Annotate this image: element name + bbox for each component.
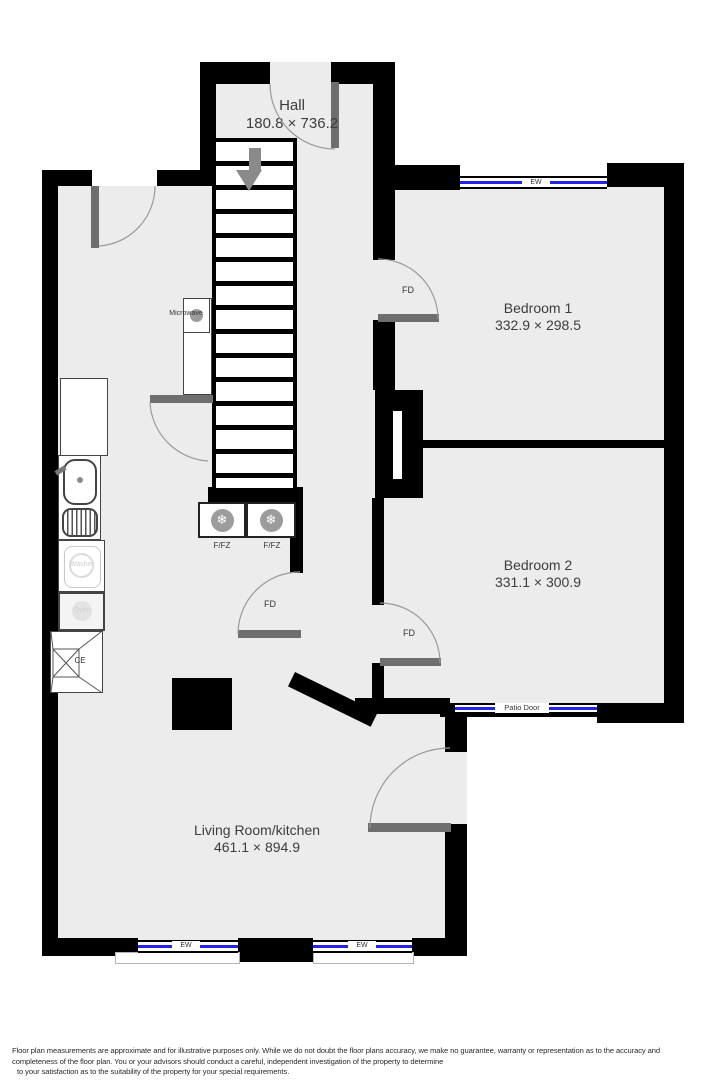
hall-label: Hall 180.8 × 736.2 <box>227 97 357 132</box>
washer-label: Washer <box>60 561 104 568</box>
chimney-pillar <box>172 678 232 730</box>
living-room-ew-right-tag: EW <box>348 941 376 950</box>
bedroom1-left-wall-lower <box>373 320 395 390</box>
fridge-freezer-1: ❄ <box>198 502 246 538</box>
bedroom1-fd-tag: FD <box>394 285 422 295</box>
top-wall-left-a <box>42 170 92 186</box>
kitchen-door-leaf <box>150 395 213 403</box>
bedroom1-name: Bedroom 1 <box>458 299 618 317</box>
sink-drainer <box>62 508 98 537</box>
living-room-right-wall-lower <box>445 824 467 956</box>
patio-door-tag: Patio Door <box>495 703 549 713</box>
stairs-down-arrow-icon <box>236 170 262 191</box>
snowflake-icon: ❄ <box>211 509 234 532</box>
snowflake-icon: ❄ <box>260 509 283 532</box>
stairs-down-arrow-icon <box>249 148 261 172</box>
bedroom2-fd-tag: FD <box>395 628 423 638</box>
oven-label: Oven <box>60 607 104 614</box>
right-exterior-wall <box>664 163 684 723</box>
disclaimer-line-1: Floor plan measurements are approximate … <box>12 1046 714 1057</box>
bedroom1-label: Bedroom 1 332.9 × 298.5 <box>458 299 618 334</box>
living-room-label: Living Room/kitchen 461.1 × 894.9 <box>177 821 337 856</box>
disclaimer-line-2: completeness of the floor plan. You or y… <box>12 1057 714 1068</box>
disclaimer-text: Floor plan measurements are approximate … <box>12 1046 714 1078</box>
fridge-freezer-1-label: F/FZ <box>204 541 240 550</box>
living-room-door-leaf <box>368 823 451 832</box>
bedroom1-dimensions: 332.9 × 298.5 <box>458 317 618 334</box>
living-room-dimensions: 461.1 × 894.9 <box>177 839 337 856</box>
chimney-niche <box>393 411 402 479</box>
staircase <box>212 138 297 492</box>
floor-plan: Washer Oven CE Microwave ❄ ❄ F/FZ F/FZ H… <box>0 0 720 1080</box>
bedroom2-bottom-wall-corner <box>597 717 684 723</box>
fridge-freezer-2-label: F/FZ <box>254 541 290 550</box>
bedroom2-door-leaf <box>380 658 441 666</box>
side-door-leaf <box>91 186 99 248</box>
mid-wall-stub <box>372 498 384 605</box>
hall-right-wall <box>373 62 395 260</box>
sink-drain <box>77 477 83 483</box>
upper-floor <box>58 186 664 717</box>
bedroom2-label: Bedroom 2 331.1 × 300.9 <box>458 556 618 591</box>
corridor-fd-tag: FD <box>256 599 284 609</box>
bedroom1-door-leaf <box>378 314 439 322</box>
bedroom2-name: Bedroom 2 <box>458 556 618 574</box>
bottom-wall-middle <box>238 938 313 962</box>
hall-top-wall-a <box>200 62 270 84</box>
corridor-door-leaf <box>238 630 301 638</box>
window-sill-right <box>313 952 414 964</box>
disclaimer-line-3: to your satisfaction as to the suitabili… <box>12 1067 714 1078</box>
fridge-freezer-2: ❄ <box>246 502 296 538</box>
living-room-right-wall-upper <box>445 714 467 752</box>
kitchen-counter <box>60 378 108 456</box>
microwave-label: Microwave <box>154 310 218 317</box>
bottom-wall-right <box>412 938 467 956</box>
left-exterior-wall <box>42 170 58 956</box>
hall-dimensions: 180.8 × 736.2 <box>227 115 357 132</box>
cooker-label: CE <box>62 656 98 665</box>
bedroom1-top-wall-left <box>384 165 460 190</box>
living-room-ew-left-tag: EW <box>172 941 200 950</box>
bedroom1-ew-tag: EW <box>522 178 550 187</box>
living-room-name: Living Room/kitchen <box>177 821 337 839</box>
bedroom-divider-wall <box>423 440 664 448</box>
bedroom2-dimensions: 331.1 × 300.9 <box>458 574 618 591</box>
hall-name: Hall <box>227 97 357 115</box>
window-sill-left <box>115 952 240 964</box>
